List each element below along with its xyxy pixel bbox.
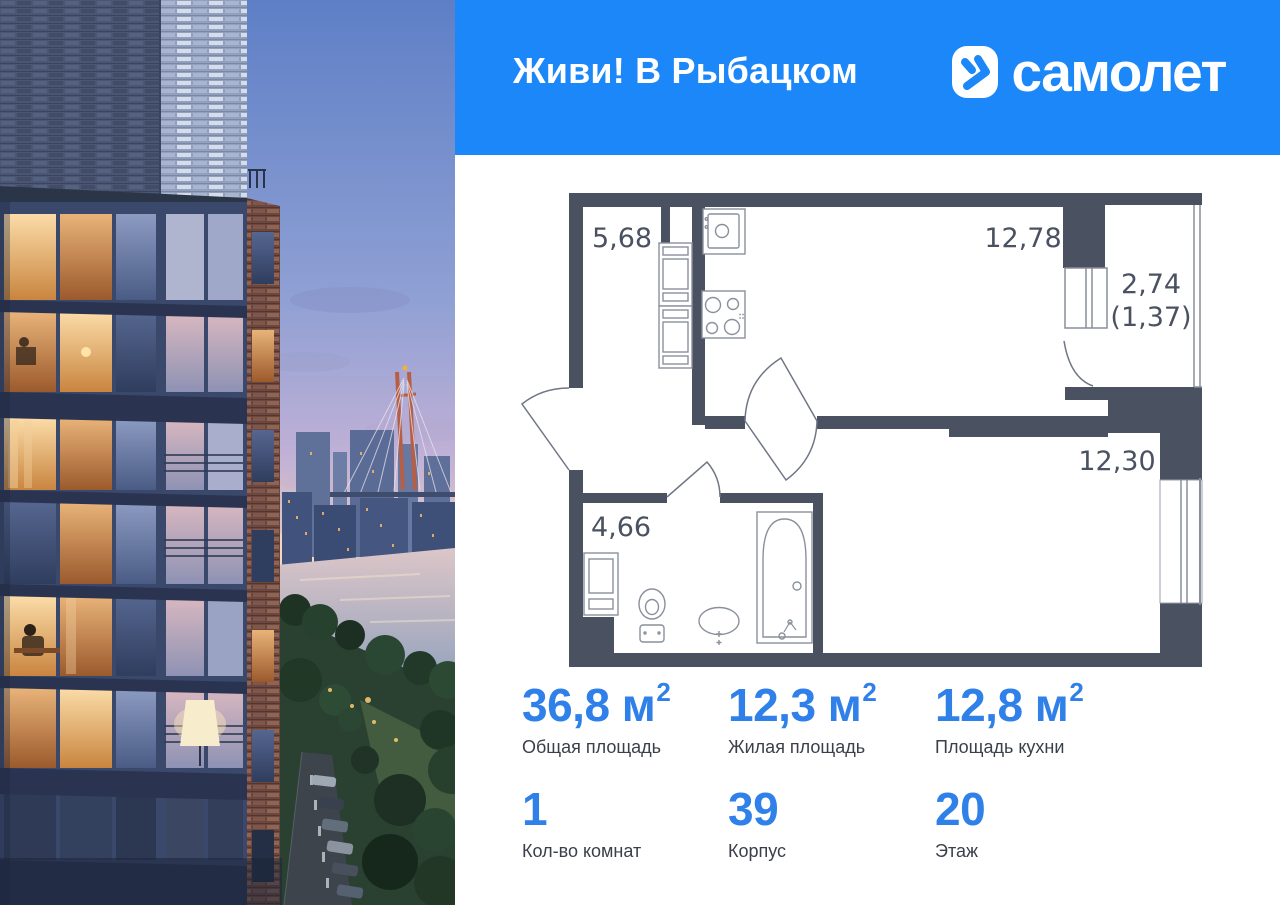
brand-logo: самолет <box>952 44 1226 100</box>
area-label-balcony-reduced: (1,37) <box>1110 302 1191 333</box>
stat-value: 36,8 м2 <box>522 682 722 728</box>
washing-machine-icon <box>584 553 618 615</box>
kitchen-sink-icon <box>703 209 745 254</box>
stat-label: Кол-во комнат <box>522 841 722 862</box>
header: Живи! В Рыбацком самолет <box>455 0 1280 155</box>
stat-total-area: 36,8 м2 Общая площадь <box>522 682 722 758</box>
stat-kitchen-area: 12,8 м2 Площадь кухни <box>935 682 1135 758</box>
stat-label: Площадь кухни <box>935 737 1135 758</box>
area-label-balcony: 2,74 <box>1121 269 1181 300</box>
stat-label: Жилая площадь <box>728 737 928 758</box>
area-label-kitchen: 12,78 <box>984 223 1061 254</box>
stat-label: Корпус <box>728 841 928 862</box>
samolet-arrow-icon <box>952 46 998 98</box>
area-label-living-room: 12,30 <box>1078 446 1155 477</box>
entrance-door <box>522 388 569 470</box>
brand-name: самолет <box>1011 45 1226 100</box>
floor-plan: 5,68 12,78 2,74 (1,37) 12,30 4,66 <box>505 185 1215 680</box>
area-label-bathroom: 4,66 <box>591 512 651 543</box>
bathtub-icon <box>757 512 812 643</box>
balcony-lamp <box>180 700 220 746</box>
living-room-window <box>1160 478 1202 605</box>
fridge-icon <box>659 243 692 368</box>
area-label-hallway: 5,68 <box>592 223 652 254</box>
roof-railing <box>248 170 266 188</box>
residential-tower <box>0 0 282 905</box>
stat-label: Этаж <box>935 841 1135 862</box>
stat-value: 12,8 м2 <box>935 682 1135 728</box>
stat-living-area: 12,3 м2 Жилая площадь <box>728 682 928 758</box>
stat-rooms: 1 Кол-во комнат <box>522 786 722 862</box>
stat-building: 39 Корпус <box>728 786 928 862</box>
stat-floor: 20 Этаж <box>935 786 1135 862</box>
stat-value: 20 <box>935 786 1135 832</box>
stat-value: 1 <box>522 786 722 832</box>
listing-panel: Живи! В Рыбацком самолет <box>455 0 1280 905</box>
stove-icon <box>702 291 745 338</box>
apartment-card: Живи! В Рыбацком самолет <box>0 0 1280 905</box>
balcony-door-window <box>1065 268 1107 328</box>
toilet-icon <box>639 589 665 642</box>
building-photo <box>0 0 455 905</box>
stat-label: Общая площадь <box>522 737 722 758</box>
stat-value: 39 <box>728 786 928 832</box>
project-title: Живи! В Рыбацком <box>513 50 858 92</box>
stat-value: 12,3 м2 <box>728 682 928 728</box>
